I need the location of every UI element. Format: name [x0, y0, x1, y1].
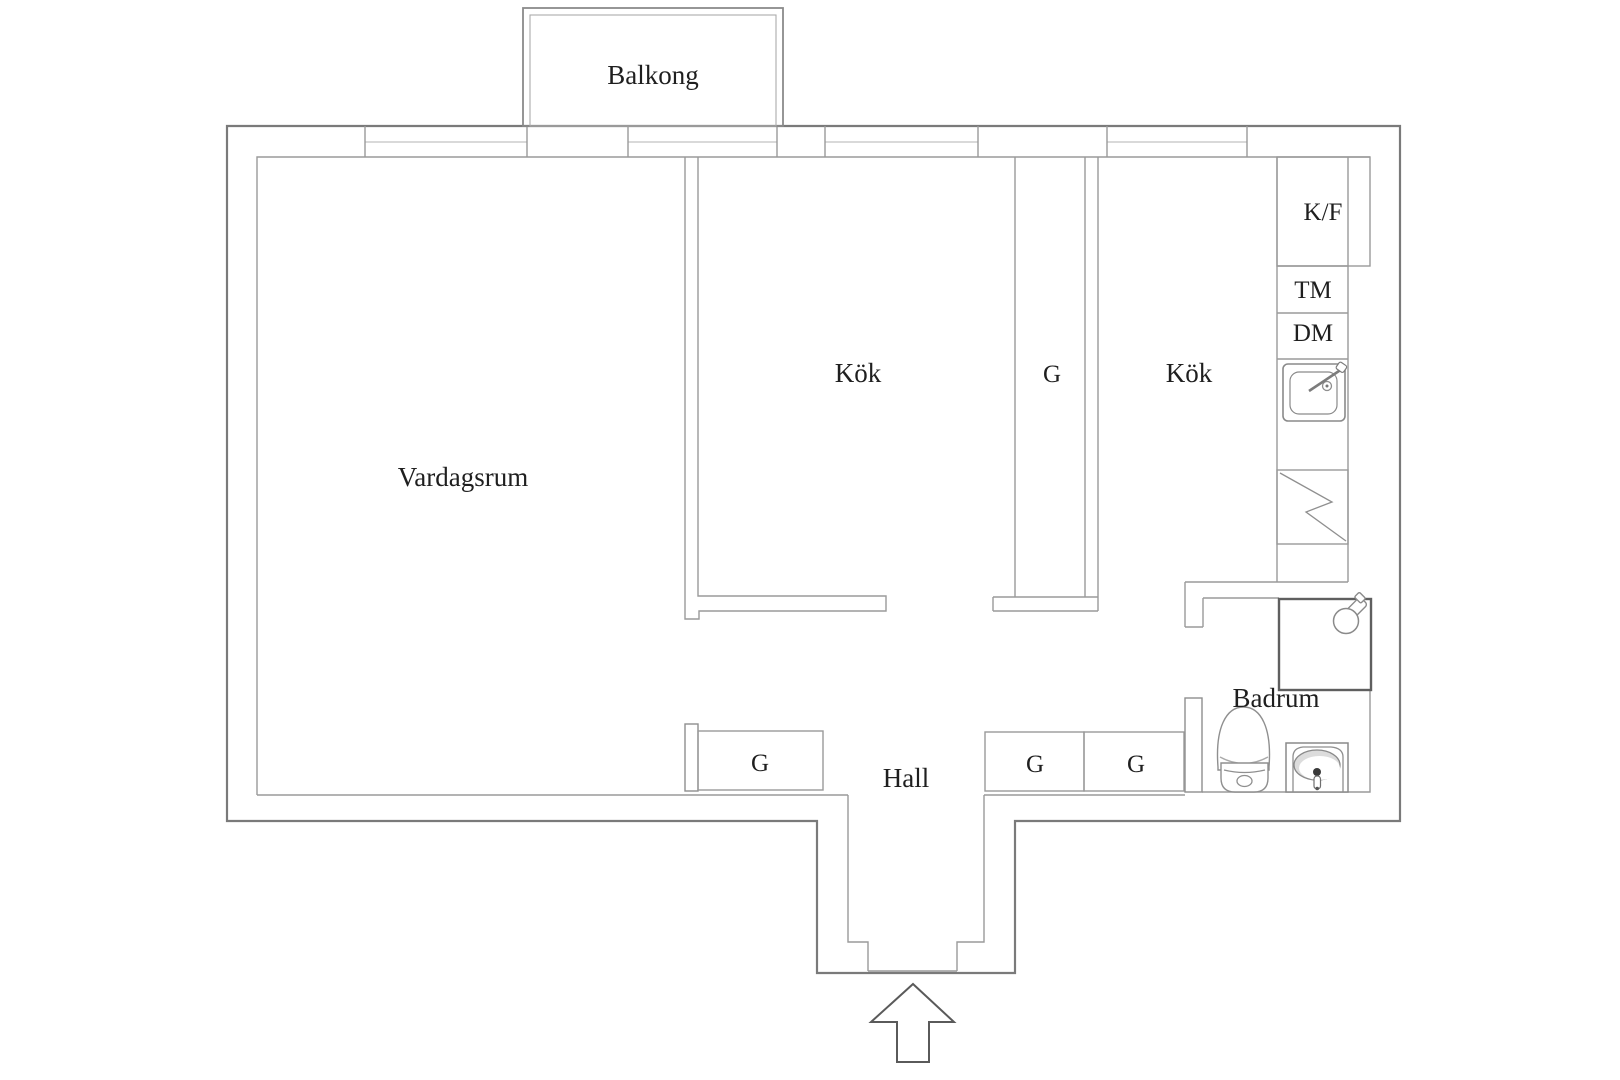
shower-icon — [1279, 592, 1371, 690]
label-hall: Hall — [883, 763, 930, 793]
exterior-wall-outer-line — [227, 126, 1400, 973]
windows — [365, 126, 1247, 157]
entry-arrow-icon — [871, 984, 954, 1062]
label-wardrobe-right-1: G — [1026, 751, 1044, 778]
stove-lightning-icon — [1277, 470, 1348, 544]
window-kitchen-right — [1107, 126, 1247, 157]
label-wardrobe-left: G — [751, 750, 769, 777]
label-closet-column: G — [1043, 361, 1061, 388]
label-kitchen-mid: Kök — [835, 358, 882, 388]
wall-livingroom-kitchen — [685, 157, 886, 619]
label-fridge-freezer: K/F — [1304, 199, 1343, 226]
window-kitchen-mid — [825, 126, 978, 157]
label-kitchen-right: Kök — [1166, 358, 1213, 388]
floor-plan-drawing: Balkong Vardagsrum Kök G Kök K/F TM DM B… — [0, 0, 1620, 1080]
window-living-room — [365, 126, 527, 157]
kitchen-sink-icon — [1283, 361, 1347, 421]
wardrobes — [698, 731, 1184, 791]
label-living-room: Vardagsrum — [398, 462, 528, 492]
bathroom-sink-icon — [1286, 743, 1348, 792]
wall-bathroom-left — [1185, 698, 1202, 792]
floor-plan-canvas: Balkong Vardagsrum Kök G Kök K/F TM DM B… — [0, 0, 1620, 1080]
wall-stub-hall — [685, 724, 698, 791]
toilet-icon — [1218, 707, 1270, 792]
label-dishwasher: DM — [1293, 320, 1333, 347]
entry-vestibule — [848, 795, 984, 971]
label-wardrobe-right-2: G — [1127, 751, 1145, 778]
label-balcony: Balkong — [607, 60, 699, 90]
window-balcony-door — [628, 126, 777, 157]
label-washing-machine: TM — [1294, 277, 1332, 304]
exterior-walls — [227, 126, 1400, 973]
label-bathroom: Badrum — [1233, 683, 1320, 713]
